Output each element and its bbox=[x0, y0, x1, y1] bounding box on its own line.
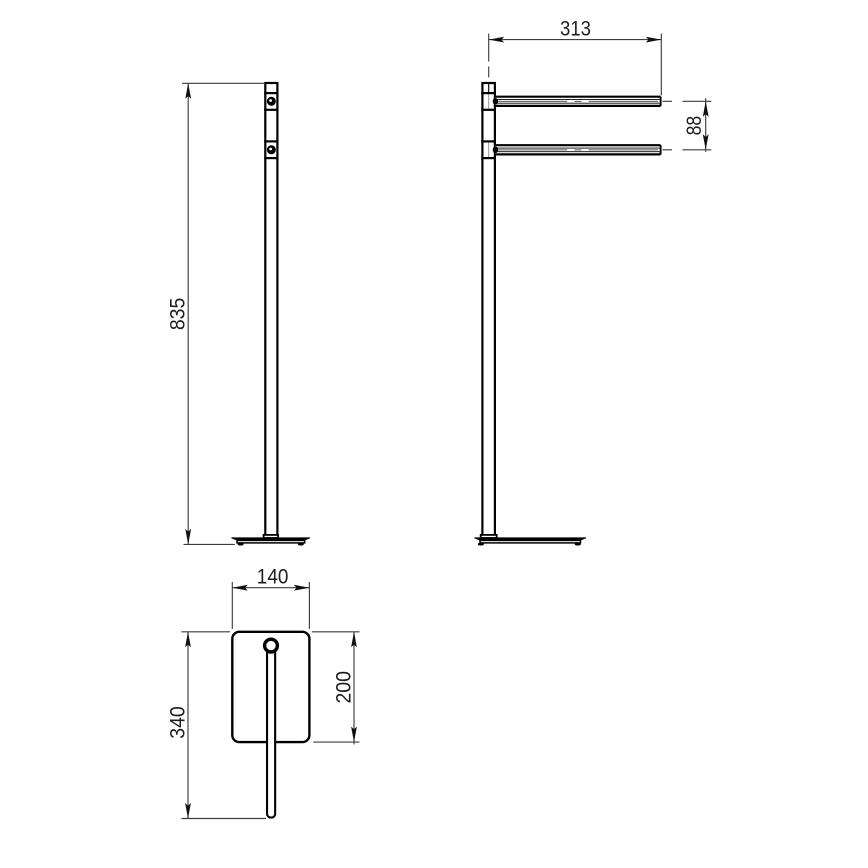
svg-text:340: 340 bbox=[165, 706, 190, 739]
svg-text:313: 313 bbox=[560, 16, 591, 41]
svg-text:140: 140 bbox=[257, 563, 289, 588]
svg-text:835: 835 bbox=[165, 298, 190, 331]
svg-text:88: 88 bbox=[681, 116, 706, 136]
svg-text:200: 200 bbox=[331, 671, 356, 704]
